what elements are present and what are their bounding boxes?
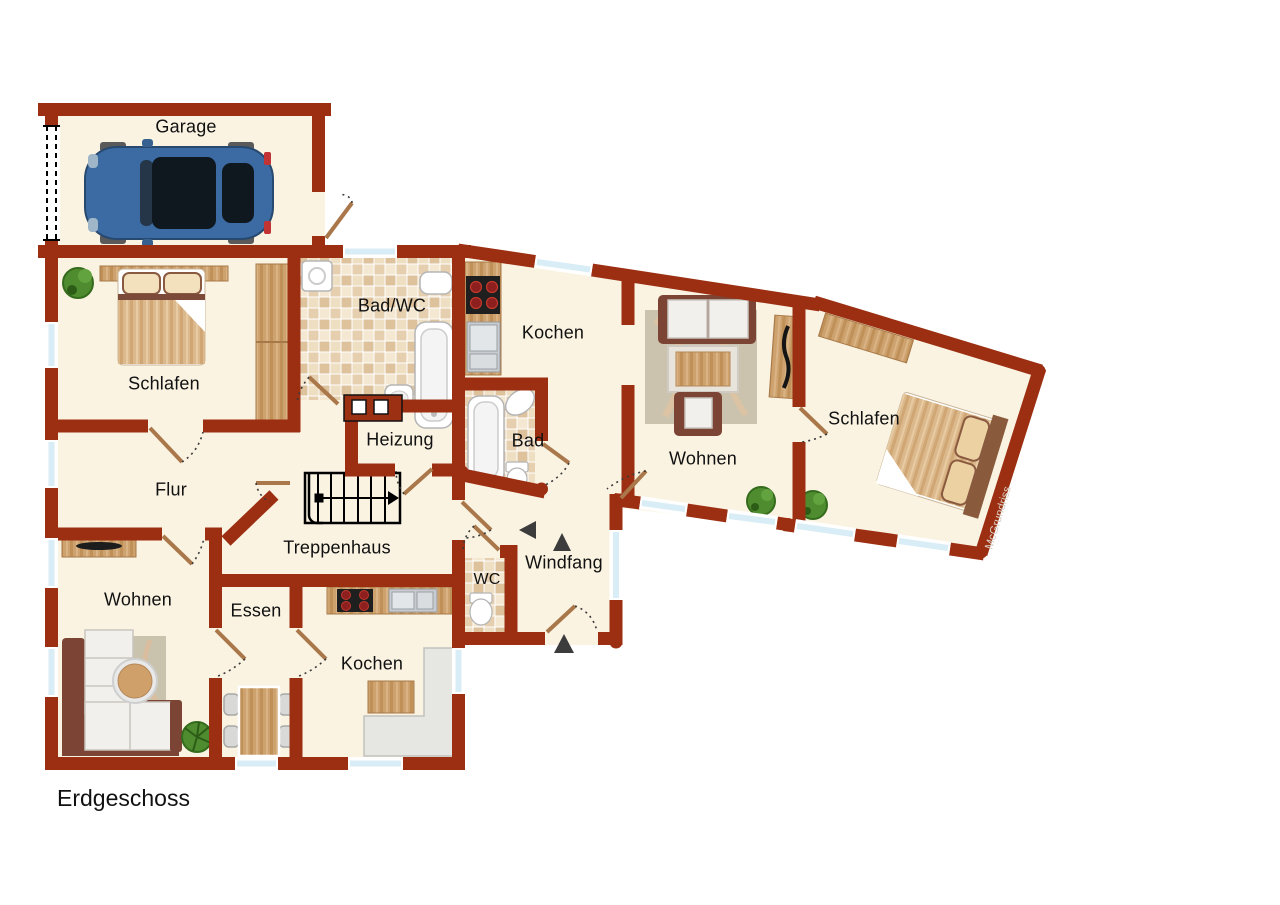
plant-icon <box>182 722 212 752</box>
chimney <box>344 395 402 421</box>
plant-icon <box>747 487 775 515</box>
room-label-essen: Essen <box>230 601 281 622</box>
washing-machine-icon <box>302 261 332 291</box>
wardrobe-icon <box>256 264 288 420</box>
room-label-garage: Garage <box>155 117 216 138</box>
garage-door <box>43 126 60 240</box>
room-label-windfang: Windfang <box>525 553 603 574</box>
floor-title: Erdgeschoss <box>57 785 190 812</box>
room-label-wohnen-left: Wohnen <box>104 590 172 611</box>
kitchen-counter-icon <box>327 587 453 614</box>
kitchen-counter-right-icon <box>465 262 501 375</box>
sink-icon <box>420 272 452 294</box>
room-label-wc: WC <box>473 571 500 589</box>
sofa-right-icon <box>658 295 756 344</box>
coffee-table-icon <box>668 346 738 392</box>
toilet-icon <box>470 593 492 625</box>
room-label-bad: Bad <box>512 431 545 452</box>
room-label-heizung: Heizung <box>366 430 433 451</box>
car-icon <box>85 139 273 247</box>
room-label-treppenhaus: Treppenhaus <box>283 538 391 559</box>
room-label-bad-wc: Bad/WC <box>358 296 426 317</box>
round-table-icon <box>113 659 157 703</box>
kitchen-table-icon <box>368 681 414 713</box>
plant-icon <box>63 268 93 298</box>
room-label-wohnen-right: Wohnen <box>669 449 737 470</box>
room-label-kochen-bottom: Kochen <box>341 654 403 675</box>
floorplan-canvas: McGrundriss Garage Schlafen Bad/WC Koche… <box>0 0 1280 905</box>
armchair-icon <box>674 392 722 436</box>
room-label-kochen-top: Kochen <box>522 323 584 344</box>
room-label-flur: Flur <box>155 480 187 501</box>
room-label-schlafen-right: Schlafen <box>828 409 900 430</box>
room-label-schlafen-left: Schlafen <box>128 374 200 395</box>
